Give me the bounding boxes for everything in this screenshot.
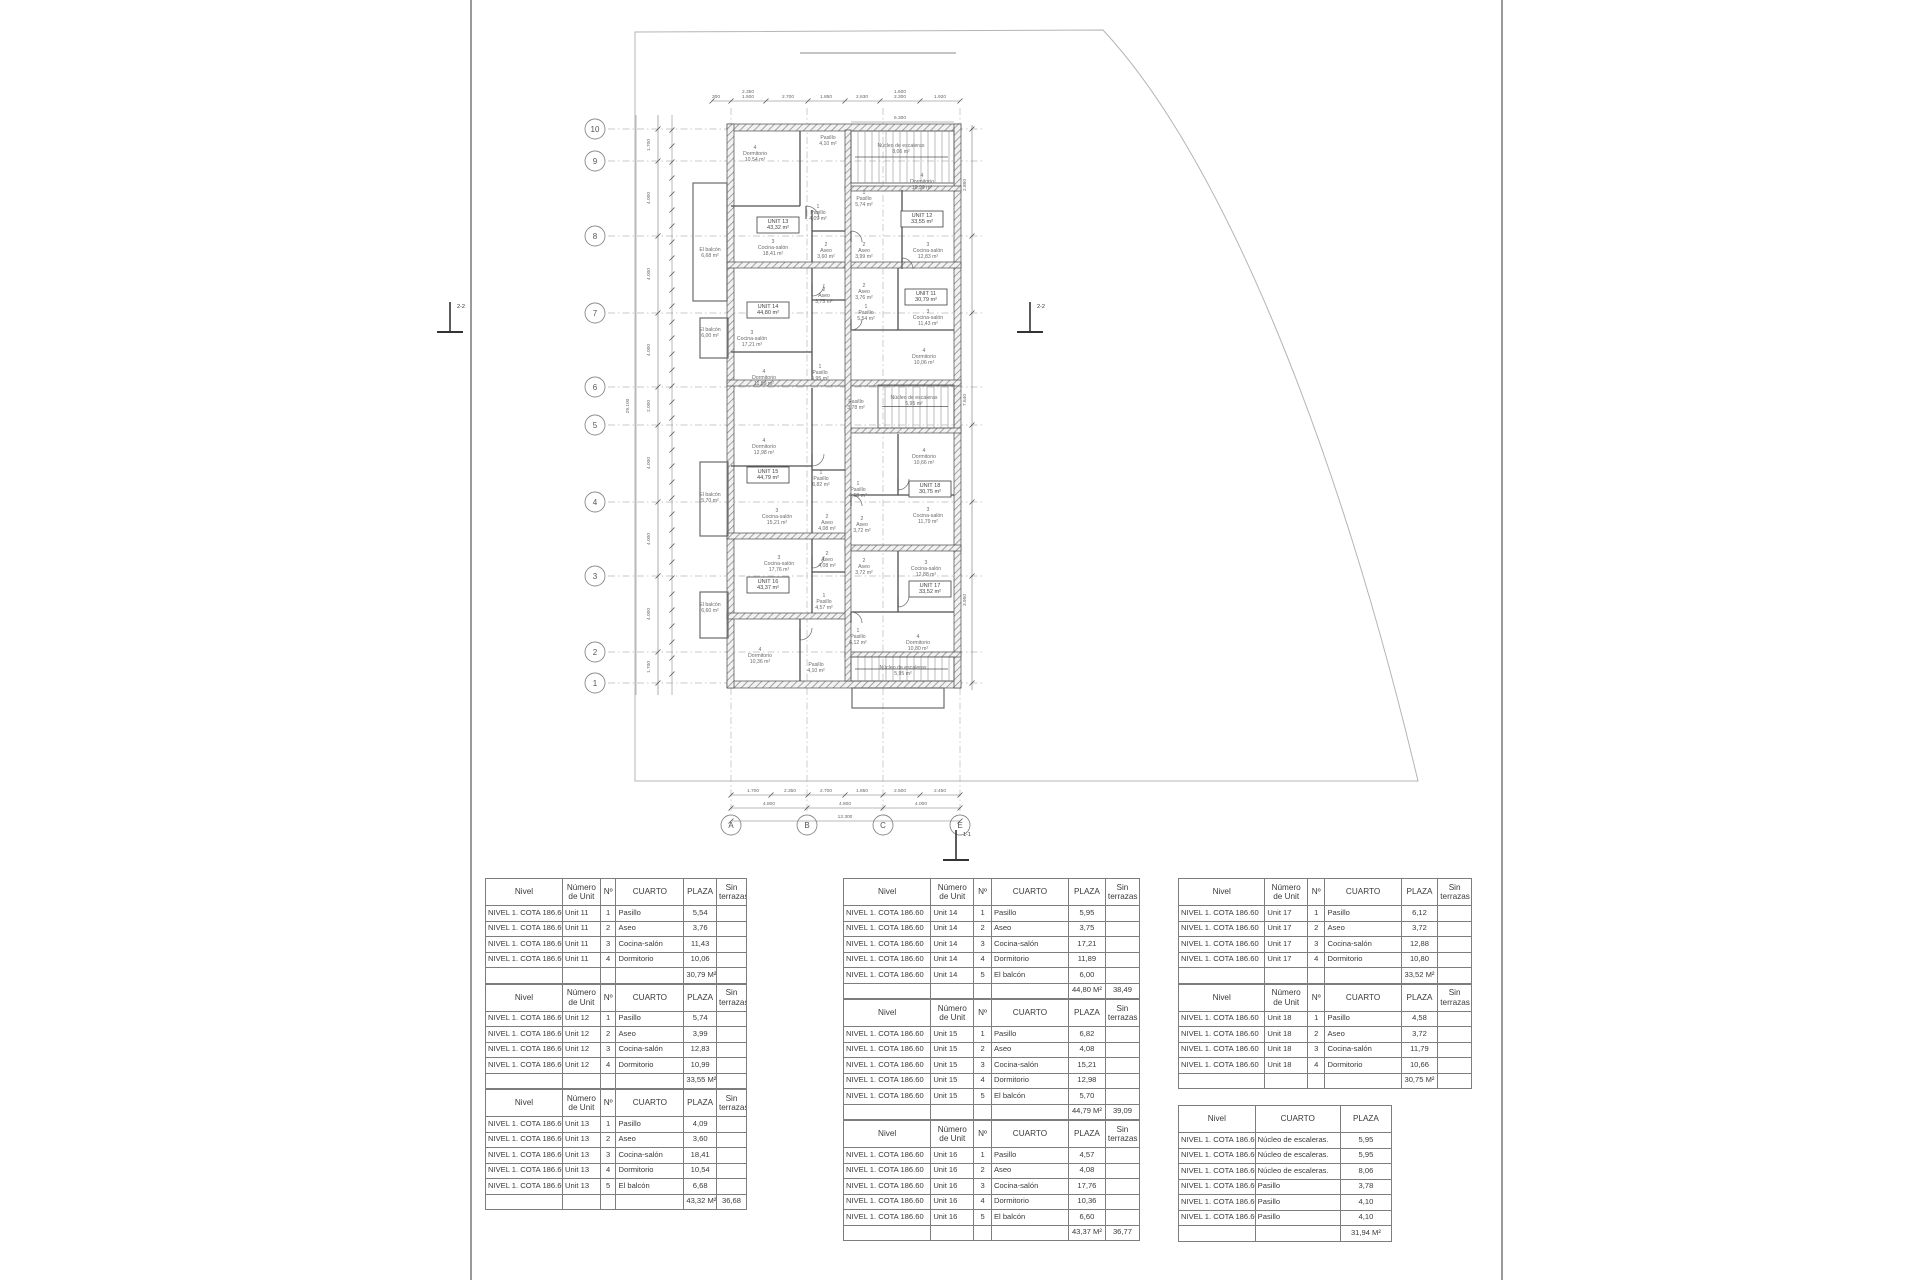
wall [727,681,961,688]
table-cell: Unit 16 [931,1148,974,1164]
table-cell [716,1132,746,1148]
table-row: NIVEL 1. COTA 186.60Unit 163Cocina-salón… [844,1179,1140,1195]
dim-label: 3.950 [962,594,968,606]
table-total-cell [486,968,563,984]
unit-box-label: UNIT 1544,79 m² [757,469,779,481]
table-total-cell: 43,32 M² [684,1194,717,1210]
table-cell: NIVEL 1. COTA 186.60 [1179,1042,1265,1058]
room-label: 4Dormitorio10,36 m² [748,647,772,665]
unit-schedule-table: NivelNúmero de UnitNºCUARTOPLAZASin terr… [485,984,747,1090]
unit-schedule-table: NivelNúmero de UnitNºCUARTOPLAZASin terr… [485,1089,747,1210]
table-row: NIVEL 1. COTA 186.60Pasillo4,10 [1179,1195,1392,1211]
room-label: Pasillo3,78 m² [847,399,865,411]
table-header-cell: Sin terrazas [1438,879,1472,906]
table-row: NIVEL 1. COTA 186.60Unit 134Dormitorio10… [486,1163,747,1179]
table-total-row: 30,75 M² [1179,1073,1472,1089]
room-label: 2Aseo3,72 m² [853,516,871,534]
table-row: NIVEL 1. COTA 186.60Unit 153Cocina-salón… [844,1058,1140,1074]
unit-box-label: UNIT 1830,75 m² [919,483,941,495]
table-cell: 6,00 [1068,968,1105,984]
table-header-cell: Sin terrazas [716,984,746,1011]
table-cell: Dormitorio [991,1073,1068,1089]
door-swing-arc [812,454,824,466]
table-cell: NIVEL 1. COTA 186.60 [486,906,563,922]
table-header-cell: Nº [974,1121,992,1148]
table-header-cell: Sin terrazas [1105,1121,1139,1148]
table-cell: El balcón [991,1089,1068,1105]
table-cell: Unit 18 [1265,1042,1307,1058]
table-cell: Aseo [616,1132,684,1148]
dim-label: 29.100 [625,398,631,413]
table-row: NIVEL 1. COTA 186.60Núcleo de escaleras.… [1179,1164,1392,1180]
table-cell: Cocina-salón [1325,1042,1401,1058]
unit-box-label: UNIT 1343,32 m² [767,219,789,231]
table-row: NIVEL 1. COTA 186.60Unit 164Dormitorio10… [844,1194,1140,1210]
door-swing-arc [851,612,862,623]
table-cell: Unit 14 [931,921,974,937]
table-total-cell: 36,77 [1105,1225,1139,1241]
table-cell: Unit 11 [562,906,600,922]
table-header-cell: PLAZA [684,984,717,1011]
table-cell: NIVEL 1. COTA 186.60 [844,1027,931,1043]
table-cell: NIVEL 1. COTA 186.60 [1179,1179,1256,1195]
table-cell [1438,937,1472,953]
section-label: 2-2 [1037,304,1045,310]
table-row: NIVEL 1. COTA 186.60Núcleo de escaleras.… [1179,1133,1392,1149]
wall [727,262,961,268]
table-cell: Aseo [1325,1027,1401,1043]
table-row: NIVEL 1. COTA 186.60Unit 174Dormitorio10… [1179,952,1472,968]
table-header-cell: Nivel [1179,1106,1256,1133]
table-header-cell: Número de Unit [562,879,600,906]
wall [727,533,851,539]
table-row: NIVEL 1. COTA 186.60Unit 142Aseo3,75 [844,921,1140,937]
table-cell [716,1011,746,1027]
table-total-cell [844,983,931,999]
table-header-cell: PLAZA [1068,1121,1105,1148]
table-cell: 3 [600,937,616,953]
table-cell [716,1058,746,1074]
table-cell: Cocina-salón [616,1148,684,1164]
table-row: NIVEL 1. COTA 186.60Unit 112Aseo3,76 [486,921,747,937]
table-cell: Unit 18 [1265,1058,1307,1074]
table-row: NIVEL 1. COTA 186.60Unit 122Aseo3,99 [486,1027,747,1043]
table-cell: 11,79 [1401,1042,1438,1058]
table-cell: El balcón [991,1210,1068,1226]
table-cell: 4 [974,1194,992,1210]
table-row: NIVEL 1. COTA 186.60Unit 124Dormitorio10… [486,1058,747,1074]
table-cell: Dormitorio [1325,1058,1401,1074]
room-label: 2Aseo3,72 m² [855,558,873,576]
room-label: El balcón6,60 m² [699,602,720,614]
table-cell: 6,12 [1401,906,1438,922]
dim-label: 2.350 [742,89,754,95]
table-cell: 6,60 [1068,1210,1105,1226]
unit-schedule-table: NivelNúmero de UnitNºCUARTOPLAZASin terr… [485,878,747,984]
table-cell: 3 [1307,937,1325,953]
table-total-row: 44,79 M²39,09 [844,1104,1140,1120]
table-cell [1438,921,1472,937]
door-swing-arc [898,596,909,607]
room-label: 1Pasillo6,12 m² [849,628,867,646]
room-label: 3Cocina-salón11,79 m² [913,507,943,525]
table-cell: 5 [974,1210,992,1226]
table-total-cell [616,968,684,984]
table-total-cell [486,1194,563,1210]
table-cell: 10,66 [1401,1058,1438,1074]
table-cell: Unit 16 [931,1179,974,1195]
table-cell: NIVEL 1. COTA 186.60 [844,1058,931,1074]
table-row: NIVEL 1. COTA 186.60Unit 162Aseo4,08 [844,1163,1140,1179]
table-cell [716,906,746,922]
table-cell [1438,952,1472,968]
table-cell: 4,58 [1401,1011,1438,1027]
table-header-cell: Nº [1307,879,1325,906]
grid-row-label: 6 [593,383,598,392]
table-total-cell [486,1073,563,1089]
table-row: NIVEL 1. COTA 186.60Unit 152Aseo4,08 [844,1042,1140,1058]
table-cell: 2 [974,1042,992,1058]
room-label: 3Cocina-salón11,43 m² [913,309,943,327]
table-cell: Dormitorio [991,1194,1068,1210]
room-label: Pasillo4,10 m² [819,135,837,147]
table-total-cell [616,1194,684,1210]
table-cell: 4,09 [684,1117,717,1133]
table-cell [1105,1058,1139,1074]
table-cell: NIVEL 1. COTA 186.60 [486,1027,563,1043]
table-cell: 1 [1307,906,1325,922]
table-cell [1105,1148,1139,1164]
table-cell: 3 [600,1148,616,1164]
table-total-row: 43,32 M²36,68 [486,1194,747,1210]
table-total-cell [974,983,992,999]
table-total-cell [1265,968,1307,984]
room-label: 4Dormitorio10,99 m² [910,173,934,191]
unit-schedule-table: NivelNúmero de UnitNºCUARTOPLAZASin terr… [843,1120,1140,1241]
table-cell: Unit 17 [1265,952,1307,968]
table-cell [1105,1027,1139,1043]
table-cell: NIVEL 1. COTA 186.60 [844,937,931,953]
table-cell: Cocina-salón [991,1179,1068,1195]
table-row: NIVEL 1. COTA 186.60Unit 145El balcón6,0… [844,968,1140,984]
table-total-cell [716,968,746,984]
table-header-cell: Número de Unit [931,879,974,906]
dim-label: 4.000 [646,608,652,620]
room-label: 1Pasillo6,82 m² [812,470,830,488]
table-cell: Núcleo de escaleras. [1255,1164,1340,1180]
table-cell: Aseo [991,921,1068,937]
table-row: NIVEL 1. COTA 186.60Unit 135El balcón6,6… [486,1179,747,1195]
plot-boundary [635,30,1418,781]
unit-box-label: UNIT 1643,37 m² [757,579,779,591]
table-row: NIVEL 1. COTA 186.60Unit 123Cocina-salón… [486,1042,747,1058]
table-header-cell: Nº [600,984,616,1011]
table-cell: 2 [600,1132,616,1148]
table-total-row: 33,55 M² [486,1073,747,1089]
room-label: 4Dormitorio10,54 m² [743,145,767,163]
table-row: NIVEL 1. COTA 186.60Unit 151Pasillo6,82 [844,1027,1140,1043]
table-total-cell [716,1073,746,1089]
room-label: 1Pasillo4,57 m² [815,593,833,611]
table-cell: 3,60 [684,1132,717,1148]
unit-box-label: UNIT 1733,52 m² [919,583,941,595]
table-cell: 2 [1307,921,1325,937]
table-total-cell [931,1225,974,1241]
unit-schedule-table: NivelNúmero de UnitNºCUARTOPLAZASin terr… [843,999,1140,1120]
table-row: NIVEL 1. COTA 186.60Unit 181Pasillo4,58 [1179,1011,1472,1027]
table-cell: 5,95 [1340,1148,1391,1164]
table-cell [716,1042,746,1058]
table-row: NIVEL 1. COTA 186.60Unit 132Aseo3,60 [486,1132,747,1148]
table-header-cell: Nivel [486,879,563,906]
room-label: 3Cocina-salón15,21 m² [762,508,792,526]
room-label: Núcleo de escaleras5,95 m² [879,665,926,677]
table-total-cell [991,983,1068,999]
table-cell: Aseo [616,921,684,937]
table-cell: Unit 12 [562,1042,600,1058]
table-cell [1105,1042,1139,1058]
table-cell: Unit 14 [931,906,974,922]
grid-col-label: E [957,821,962,830]
table-row: NIVEL 1. COTA 186.60Unit 131Pasillo4,09 [486,1117,747,1133]
table-cell: Unit 17 [1265,906,1307,922]
table-cell: Pasillo [1255,1179,1340,1195]
table-cell: Pasillo [1255,1210,1340,1226]
table-row: NIVEL 1. COTA 186.60Unit 121Pasillo5,74 [486,1011,747,1027]
wall [954,124,961,688]
table-cell: 4 [974,952,992,968]
table-total-cell: 33,52 M² [1401,968,1438,984]
table-cell: NIVEL 1. COTA 186.60 [1179,952,1265,968]
unit-box-label: UNIT 1130,79 m² [915,291,937,303]
unit-schedule-table: NivelNúmero de UnitNºCUARTOPLAZASin terr… [1178,878,1472,984]
table-cell: NIVEL 1. COTA 186.60 [844,1194,931,1210]
dim-label: 2.350 [784,788,796,794]
table-cell: NIVEL 1. COTA 186.60 [1179,1164,1256,1180]
table-cell: Cocina-salón [616,937,684,953]
table-cell: NIVEL 1. COTA 186.60 [1179,1148,1256,1164]
table-cell: Unit 14 [931,937,974,953]
table-total-cell [1325,968,1401,984]
table-cell: 2 [600,1027,616,1043]
table-cell: NIVEL 1. COTA 186.60 [844,968,931,984]
dim-label: 1.700 [646,661,652,673]
table-cell: 2 [600,921,616,937]
dim-label: 2.700 [782,94,794,100]
table-cell: NIVEL 1. COTA 186.60 [486,952,563,968]
grid-row-label: 9 [593,157,598,166]
room-label: 3Cocina-salón12,83 m² [913,242,943,260]
table-cell [716,937,746,953]
table-cell: 5 [600,1179,616,1195]
table-total-cell [844,1225,931,1241]
table-cell [1105,1179,1139,1195]
grid-col-label: C [880,821,886,830]
table-cell: NIVEL 1. COTA 186.60 [486,1117,563,1133]
table-cell [1105,921,1139,937]
table-header-cell: Nivel [1179,879,1265,906]
table-header-cell: Sin terrazas [1105,879,1139,906]
table-cell: 3 [1307,1042,1325,1058]
table-cell: NIVEL 1. COTA 186.60 [844,952,931,968]
table-row: NIVEL 1. COTA 186.60Unit 173Cocina-salón… [1179,937,1472,953]
table-cell: 3,72 [1401,921,1438,937]
dim-label: 1.850 [856,788,868,794]
table-cell: Unit 15 [931,1042,974,1058]
table-cell: Cocina-salón [616,1042,684,1058]
table-cell: 2 [974,1163,992,1179]
table-header-cell: Nº [974,1000,992,1027]
table-cell: Cocina-salón [991,1058,1068,1074]
table-cell [716,952,746,968]
table-row: NIVEL 1. COTA 186.60Unit 154Dormitorio12… [844,1073,1140,1089]
table-cell [1105,1210,1139,1226]
table-cell [1438,1011,1472,1027]
dim-label: 12.300 [838,814,853,820]
grid-row-label: 1 [593,679,598,688]
table-row: NIVEL 1. COTA 186.60Unit 111Pasillo5,54 [486,906,747,922]
room-label: 2Aseo3,76 m² [855,283,873,301]
table-cell: 3,76 [684,921,717,937]
table-cell: Unit 18 [1265,1011,1307,1027]
table-cell: Unit 13 [562,1132,600,1148]
table-cell: Unit 12 [562,1058,600,1074]
table-cell: NIVEL 1. COTA 186.60 [844,1210,931,1226]
dim-label: 300 [712,94,720,100]
table-cell: 5 [974,968,992,984]
table-cell: Pasillo [1255,1195,1340,1211]
table-header-cell: PLAZA [1401,984,1438,1011]
room-label: 2Aseo3,60 m² [817,242,835,260]
table-cell: 10,99 [684,1058,717,1074]
wall [727,124,961,131]
table-cell: Unit 18 [1265,1027,1307,1043]
table-cell: 4 [600,1058,616,1074]
dim-label: 2.500 [894,788,906,794]
table-cell: 4,10 [1340,1195,1391,1211]
table-cell: NIVEL 1. COTA 186.60 [486,1163,563,1179]
table-cell: 4 [974,1073,992,1089]
room-label: 4Dormitorio10,80 m² [906,634,930,652]
table-cell: 4 [1307,952,1325,968]
table-cell: Dormitorio [616,952,684,968]
dim-label: 4.000 [646,192,652,204]
table-cell: 4,10 [1340,1210,1391,1226]
table-row: NIVEL 1. COTA 186.60Unit 143Cocina-salón… [844,937,1140,953]
table-total-cell [1179,968,1265,984]
room-label: 1Pasillo5,95 m² [811,364,829,382]
table-cell: Unit 16 [931,1210,974,1226]
table-header-cell: CUARTO [1325,984,1401,1011]
table-total-cell: 43,37 M² [1068,1225,1105,1241]
table-cell: NIVEL 1. COTA 186.60 [844,1148,931,1164]
table-total-cell: 30,79 M² [684,968,717,984]
table-cell: 12,83 [684,1042,717,1058]
table-header-cell: Número de Unit [1265,984,1307,1011]
room-label: 1Pasillo5,74 m² [855,190,873,208]
table-cell [1105,1194,1139,1210]
table-cell: Pasillo [616,1117,684,1133]
table-cell: 1 [600,1011,616,1027]
table-header-cell: CUARTO [616,879,684,906]
table-cell: NIVEL 1. COTA 186.60 [1179,1210,1256,1226]
table-row: NIVEL 1. COTA 186.60Unit 171Pasillo6,12 [1179,906,1472,922]
table-cell: Dormitorio [991,952,1068,968]
table-row: NIVEL 1. COTA 186.60Unit 155El balcón5,7… [844,1089,1140,1105]
table-cell: Dormitorio [616,1163,684,1179]
table-total-cell: 36,68 [716,1194,746,1210]
schedule-column-right: NivelNúmero de UnitNºCUARTOPLAZASin terr… [1178,878,1472,1242]
table-cell: Pasillo [616,1011,684,1027]
wall [845,545,961,551]
dim-label: 1.700 [646,139,652,151]
table-header-cell: Nº [1307,984,1325,1011]
room-label: El balcón5,70 m² [699,492,720,504]
table-cell: NIVEL 1. COTA 186.60 [1179,1058,1265,1074]
table-cell: Unit 15 [931,1073,974,1089]
table-total-cell [1307,1073,1325,1089]
table-cell: Aseo [616,1027,684,1043]
table-cell: NIVEL 1. COTA 186.60 [486,937,563,953]
grid-row-label: 10 [591,125,600,134]
table-cell: 5,95 [1068,906,1105,922]
table-header-cell: Nivel [486,984,563,1011]
table-header-cell: Sin terrazas [1105,1000,1139,1027]
table-header-cell: CUARTO [991,1121,1068,1148]
table-total-row: 33,52 M² [1179,968,1472,984]
room-label: 4Dormitorio11,89 m² [752,369,776,387]
room-label: 4Dormitorio10,66 m² [912,448,936,466]
table-cell [1438,1058,1472,1074]
table-cell: 10,80 [1401,952,1438,968]
table-cell: NIVEL 1. COTA 186.60 [486,921,563,937]
table-total-cell: 30,75 M² [1401,1073,1438,1089]
table-header-cell: PLAZA [684,879,717,906]
room-label: 2Aseo4,08 m² [818,514,836,532]
table-row: NIVEL 1. COTA 186.60Unit 113Cocina-salón… [486,937,747,953]
dim-label: 1.850 [820,94,832,100]
table-total-cell [991,1225,1068,1241]
table-cell: Pasillo [991,906,1068,922]
dim-label: 4.000 [646,457,652,469]
table-header-cell: Número de Unit [931,1121,974,1148]
table-header-cell: Nivel [844,1121,931,1148]
table-row: NIVEL 1. COTA 186.60Unit 184Dormitorio10… [1179,1058,1472,1074]
table-cell: Dormitorio [616,1058,684,1074]
table-total-cell [1179,1073,1265,1089]
common-areas-table: NivelCUARTOPLAZANIVEL 1. COTA 186.60Núcl… [1178,1105,1392,1242]
table-cell: 17,76 [1068,1179,1105,1195]
schedule-column-left: NivelNúmero de UnitNºCUARTOPLAZASin terr… [485,878,747,1210]
table-header-cell: CUARTO [1255,1106,1340,1133]
table-cell: Pasillo [991,1148,1068,1164]
grid-row-label: 2 [593,648,598,657]
table-total-row: 31,94 M² [1179,1226,1392,1242]
table-cell [1105,1163,1139,1179]
balcony-outline [700,592,728,638]
dim-label: 2.000 [646,400,652,412]
table-cell: NIVEL 1. COTA 186.60 [1179,1195,1256,1211]
dim-label: 2.850 [962,179,968,191]
table-cell: NIVEL 1. COTA 186.60 [844,1163,931,1179]
table-header-cell: Nivel [1179,984,1265,1011]
table-total-cell: 33,55 M² [684,1073,717,1089]
table-total-cell [600,1194,616,1210]
table-cell: NIVEL 1. COTA 186.60 [844,1179,931,1195]
table-cell: 5,70 [1068,1089,1105,1105]
table-cell: NIVEL 1. COTA 186.60 [486,1011,563,1027]
table-row: NIVEL 1. COTA 186.60Unit 182Aseo3,72 [1179,1027,1472,1043]
